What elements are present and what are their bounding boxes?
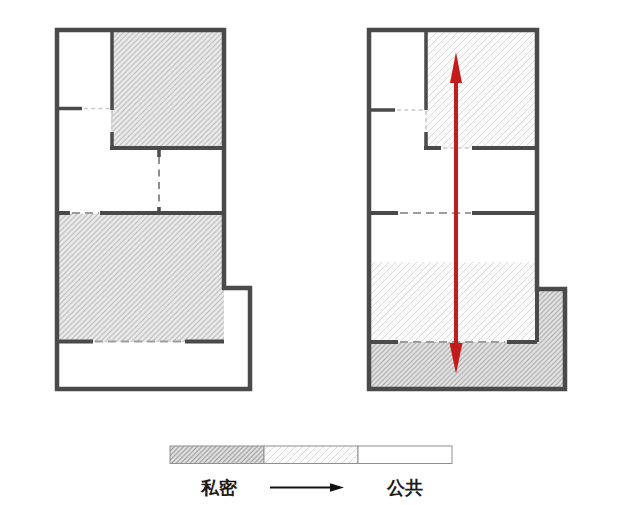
diagram-svg: 私密 公共 (0, 0, 640, 505)
left-floor-plan (57, 29, 250, 390)
legend-swatch-semi (264, 446, 358, 464)
legend-swatch-public (358, 446, 452, 464)
floor-plan-comparison-diagram: 私密 公共 (0, 0, 640, 505)
left-plan-lower-private-room-hatch (57, 214, 224, 343)
legend-swatch-private (170, 446, 264, 464)
legend-private-label: 私密 (200, 478, 238, 498)
legend-arrow-icon (270, 483, 344, 492)
legend-public-label: 公共 (386, 478, 423, 498)
right-plan-upper-room-hatch (426, 29, 538, 149)
right-floor-plan (369, 29, 565, 390)
legend: 私密 公共 (170, 446, 452, 498)
right-plan-middle-band-hatch (370, 262, 536, 342)
left-plan-upper-private-room-hatch (111, 29, 224, 149)
